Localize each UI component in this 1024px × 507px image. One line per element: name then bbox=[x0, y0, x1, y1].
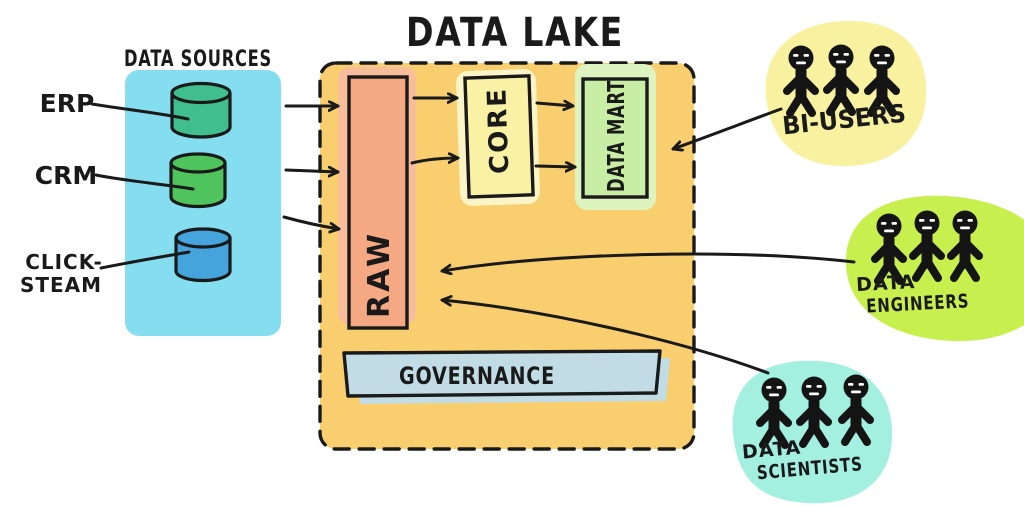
governance-label: GOVERNANCE bbox=[399, 362, 555, 390]
data-sources-title: DATA SOURCES bbox=[124, 47, 272, 72]
erp-label: ERP bbox=[40, 89, 95, 118]
data-engineers-label-line1: DATA bbox=[856, 271, 916, 296]
crm-label: CRM bbox=[35, 161, 97, 190]
clickstream-database-icon bbox=[176, 229, 230, 281]
crm-database-icon bbox=[171, 154, 225, 206]
core-zone-group: CORE bbox=[456, 69, 541, 207]
data-lake-diagram: DATA SOURCES ERP CRM CLICK- STEAM DATA L… bbox=[0, 0, 1024, 507]
core-label: CORE bbox=[482, 86, 515, 174]
clickstream-label-line2: STEAM bbox=[20, 273, 102, 297]
clickstream-label-line1: CLICK- bbox=[25, 250, 103, 274]
arrow-crm-to-raw bbox=[286, 170, 338, 172]
data-mart-zone-group: DATA MART bbox=[575, 64, 656, 210]
arrow-core-to-mart-2 bbox=[536, 166, 575, 167]
diagram-canvas: DATA SOURCES ERP CRM CLICK- STEAM DATA L… bbox=[0, 0, 1024, 507]
raw-label: RAW bbox=[362, 231, 397, 318]
erp-database-icon bbox=[172, 84, 230, 138]
data-mart-label: DATA MART bbox=[604, 80, 630, 192]
data-lake-title: DATA LAKE bbox=[406, 10, 624, 56]
